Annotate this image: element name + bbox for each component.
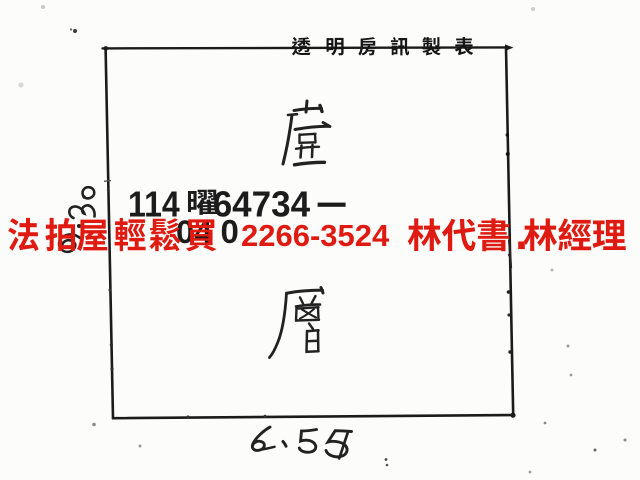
svg-text:0: 0 [221, 213, 239, 250]
svg-text:114: 114 [128, 184, 180, 224]
svg-text:2266-3524: 2266-3524 [241, 218, 390, 253]
